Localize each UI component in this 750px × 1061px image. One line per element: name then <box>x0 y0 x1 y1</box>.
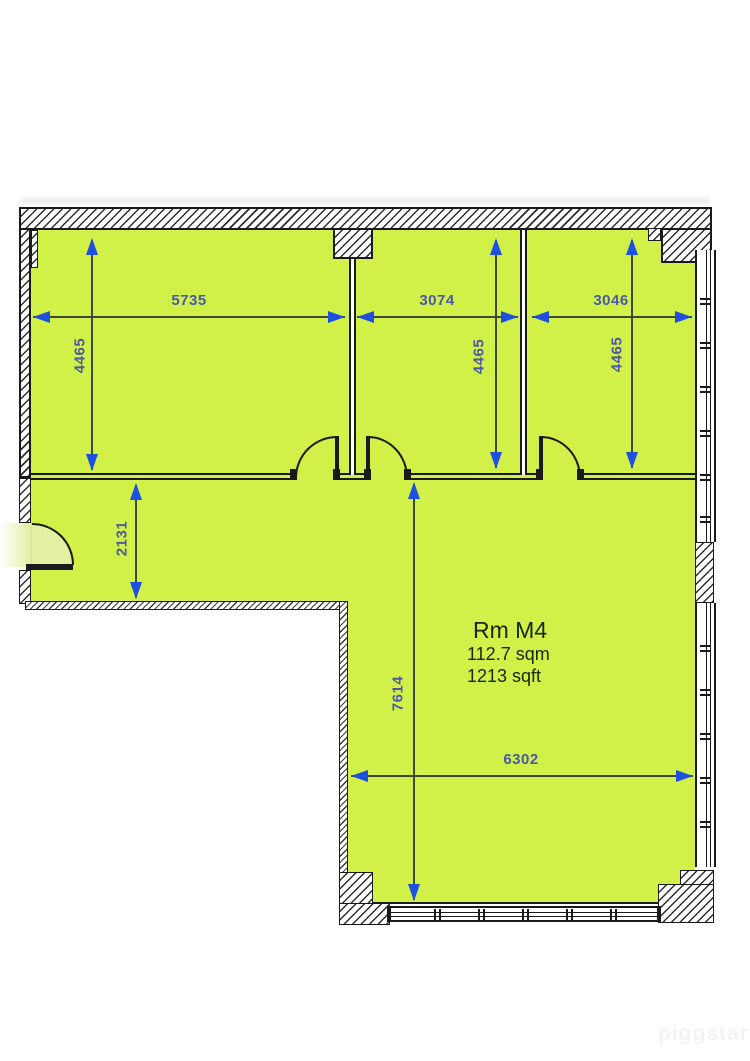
room-area-sqm: 112.7 sqm <box>467 644 550 666</box>
pier-bottom-right-lower <box>658 884 714 923</box>
pier-bottom-left-upper <box>339 872 373 905</box>
dim-label: 4465 <box>609 310 626 400</box>
mullion-tick <box>700 821 711 828</box>
mullion-tick <box>700 516 711 523</box>
window-right-upper <box>695 250 716 542</box>
wall-partition-1 <box>349 256 356 475</box>
dim-label: 3046 <box>566 292 656 309</box>
door-leaf-exterior <box>26 564 73 570</box>
room-name: Rm M4 <box>467 616 550 644</box>
dim-label: 3074 <box>392 292 482 309</box>
mullion-tick <box>700 342 711 349</box>
dim-label: 7614 <box>390 649 407 739</box>
mullion-tick <box>700 474 711 481</box>
dim-label: 4465 <box>471 312 488 402</box>
scan-artifact <box>20 198 710 204</box>
wall-left-lower-a <box>19 478 31 523</box>
mullion-tick <box>434 909 441 920</box>
wall-notch-vertical <box>339 601 348 873</box>
door-opening-spill <box>0 523 31 567</box>
wall-partition1-head <box>333 228 373 259</box>
dim-label: 6302 <box>476 751 566 768</box>
wall-top <box>19 207 712 230</box>
mullion-tick <box>700 777 711 784</box>
room-area-sqft: 1213 sqft <box>467 666 550 688</box>
mullion-tick <box>610 909 617 920</box>
mullion-tick <box>700 689 711 696</box>
mullion-tick <box>478 909 485 920</box>
dim-label: 4465 <box>72 311 89 401</box>
wall-notch-horizontal <box>25 601 347 610</box>
door-leaf-2 <box>366 436 370 480</box>
mullion-tick <box>700 298 711 305</box>
mullion-tick <box>700 386 711 393</box>
mullion-tick <box>700 645 711 652</box>
window-post <box>387 906 391 922</box>
wall-top-left-step <box>31 230 38 268</box>
wall-mid-segment <box>580 473 695 480</box>
door-leaf-1 <box>335 436 339 480</box>
wall-top-right-nub <box>648 228 661 241</box>
mullion-tick <box>522 909 529 920</box>
wall-mid-segment <box>31 473 295 480</box>
window-post <box>657 906 661 922</box>
dim-label: 2131 <box>114 494 131 584</box>
sill-line <box>347 902 660 904</box>
mullion-tick <box>700 430 711 437</box>
floor-plan-canvas: 5735 3074 3046 4465 4465 4465 21 <box>0 0 750 1061</box>
wall-partition-2 <box>520 230 527 475</box>
watermark: piggstar <box>658 1022 749 1046</box>
dim-label: 5735 <box>144 292 234 309</box>
mullion-tick <box>566 909 573 920</box>
wall-left-lower-b <box>19 570 31 604</box>
wall-left <box>19 228 31 478</box>
pier-right-middle <box>695 542 714 603</box>
mullion-tick <box>700 733 711 740</box>
door-leaf-3 <box>539 436 543 480</box>
pier-bottom-left-lower <box>339 903 390 925</box>
room-label-block: Rm M4 112.7 sqm 1213 sqft <box>467 616 550 688</box>
